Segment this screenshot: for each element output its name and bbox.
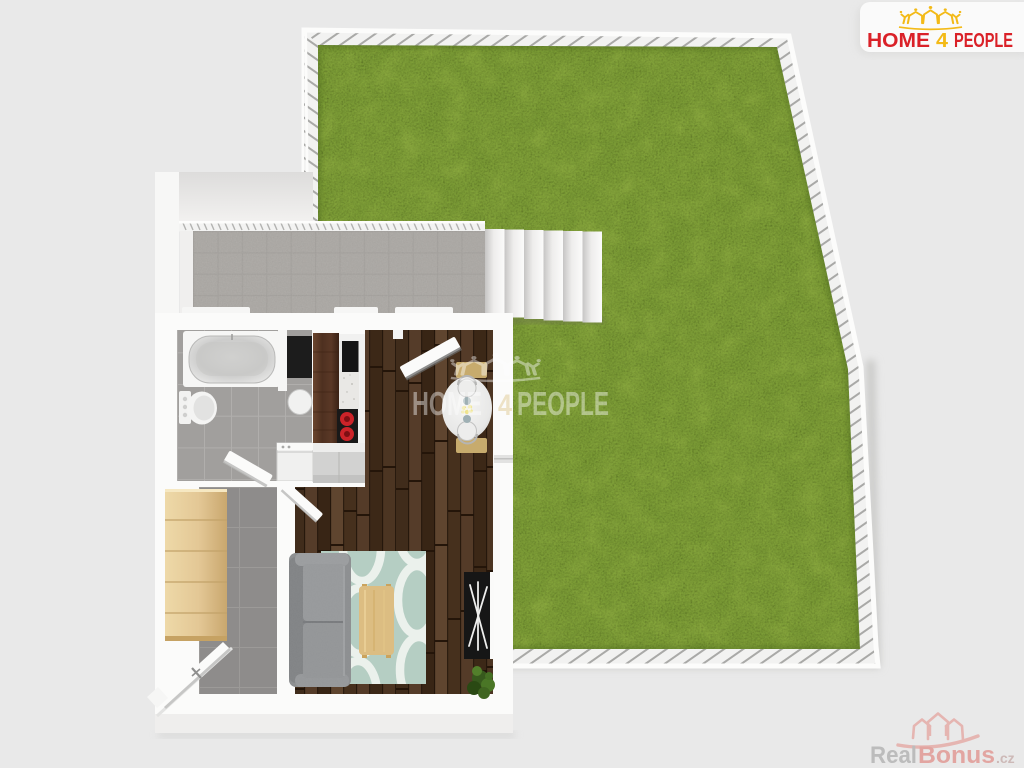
svg-text:Bonus: Bonus	[918, 742, 995, 768]
svg-text:.cz: .cz	[996, 750, 1015, 766]
svg-text:Real: Real	[870, 742, 917, 768]
svg-text:4: 4	[498, 389, 512, 422]
svg-text:4: 4	[936, 30, 949, 52]
svg-text:PEOPLE: PEOPLE	[517, 385, 609, 422]
svg-text:PEOPLE: PEOPLE	[954, 30, 1013, 52]
svg-text:HOME: HOME	[412, 385, 482, 422]
svg-text:HOME: HOME	[867, 30, 930, 52]
